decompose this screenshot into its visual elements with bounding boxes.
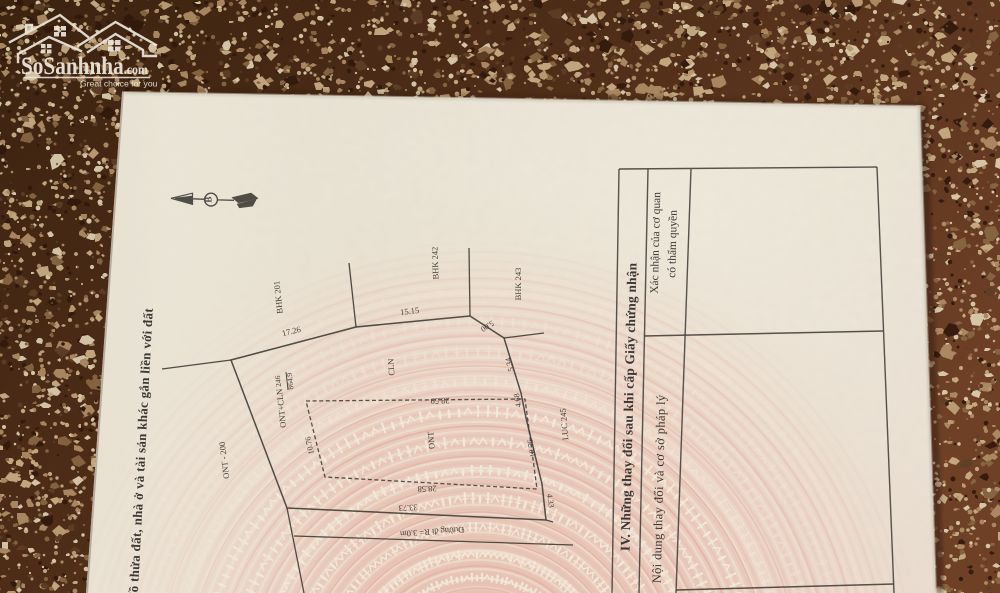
svg-text:28.58: 28.58 <box>417 484 436 495</box>
svg-text:có thẩm quyền: có thẩm quyền <box>665 210 680 278</box>
svg-text:BHK 243: BHK 243 <box>513 268 523 301</box>
svg-text:BHK 242: BHK 242 <box>429 247 440 280</box>
svg-text:ONT: ONT <box>425 430 437 449</box>
svg-text:33.73: 33.73 <box>398 503 418 514</box>
svg-text:Xác nhận của cơ quan: Xác nhận của cơ quan <box>649 192 663 294</box>
svg-text:CLN: CLN <box>386 358 397 376</box>
svg-text:246: 246 <box>273 375 283 387</box>
svg-text:Great choice for you: Great choice for you <box>80 79 158 89</box>
svg-text:B: B <box>203 197 213 203</box>
svg-text:28.59: 28.59 <box>430 396 449 406</box>
